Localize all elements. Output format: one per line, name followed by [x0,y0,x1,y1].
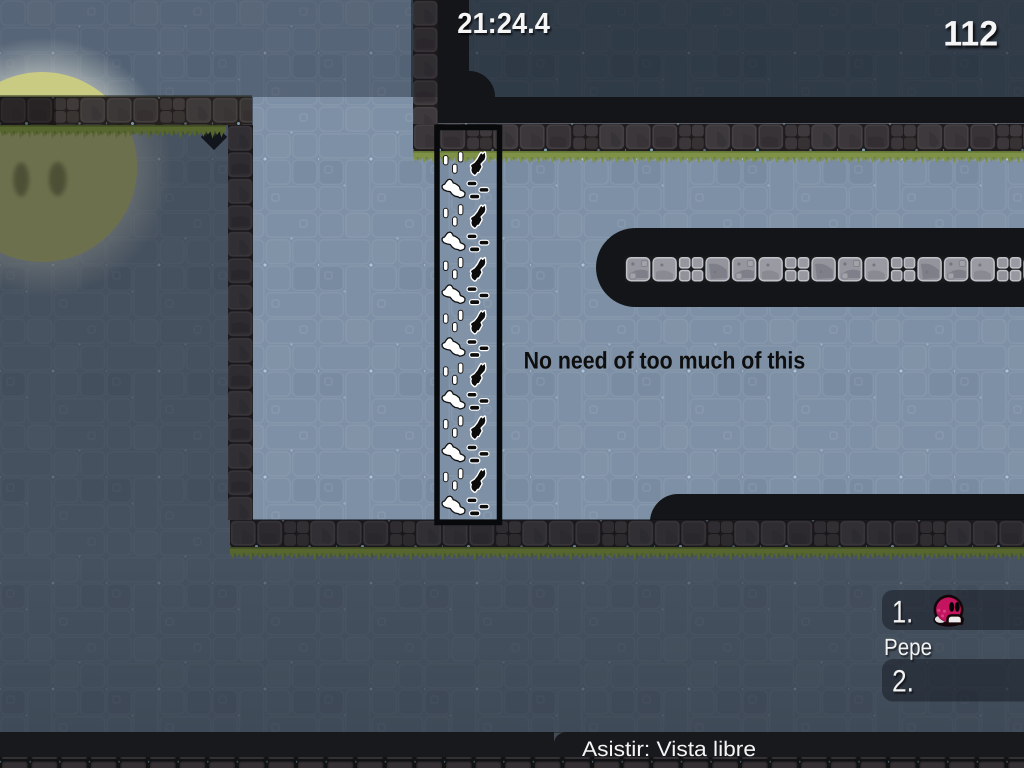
svg-text:21:24.4: 21:24.4 [457,8,550,40]
svg-text:2.: 2. [892,664,914,699]
svg-text:Pepe: Pepe [884,634,932,660]
svg-text:1.: 1. [892,593,913,629]
svg-text:112: 112 [943,14,998,54]
svg-text:No need of too much of this: No need of too much of this [524,348,806,375]
svg-text:Asistir: Vista libre: Asistir: Vista libre [582,738,756,761]
